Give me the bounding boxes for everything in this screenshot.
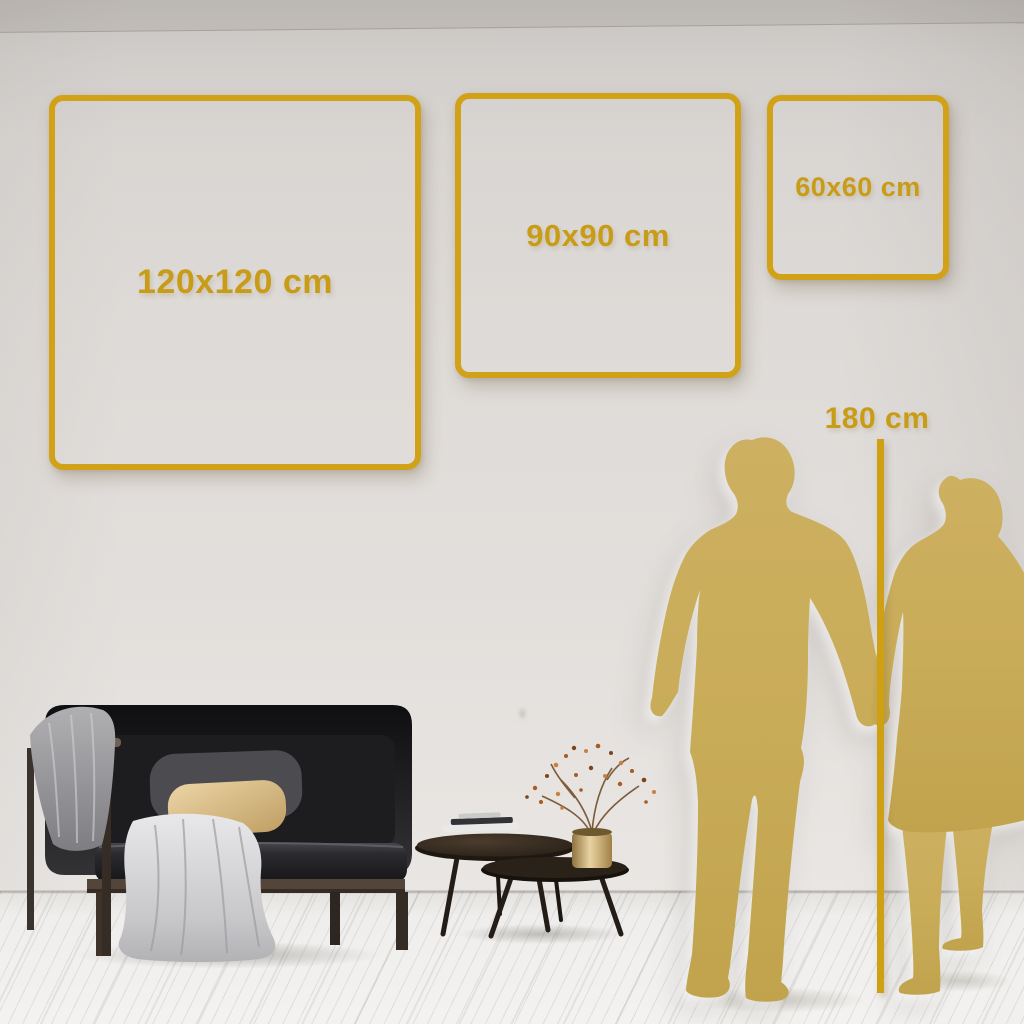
small-table-leg xyxy=(556,880,561,920)
frame-90x90: 90x90 cm xyxy=(455,93,741,378)
man-silhouette xyxy=(650,437,883,1001)
size-label-90: 90x90 cm xyxy=(526,218,670,254)
plant-berries xyxy=(525,744,656,810)
woman-silhouette xyxy=(870,476,1024,833)
small-table-leg xyxy=(601,876,621,934)
small-table-leg xyxy=(491,878,511,936)
frame-120x120: 120x120 cm xyxy=(49,95,421,470)
couple-silhouettes xyxy=(640,430,1024,1015)
sofa-mid-leg xyxy=(330,892,340,945)
frame-60x60: 60x60 cm xyxy=(767,95,949,280)
white-throw xyxy=(119,814,276,962)
size-guide-scene: 120x120 cm 90x90 cm 60x60 cm 180 cm xyxy=(0,0,1024,1024)
big-table-leg xyxy=(443,858,457,934)
sofa-front-right-leg xyxy=(396,892,408,950)
woman-front-leg xyxy=(899,826,947,995)
sofa-rear-left-leg xyxy=(27,748,34,930)
height-ruler-line xyxy=(877,439,884,993)
small-table xyxy=(481,857,629,936)
size-label-60: 60x60 cm xyxy=(795,172,921,203)
coffee-tables xyxy=(415,718,677,944)
books xyxy=(443,812,520,833)
size-label-120: 120x120 cm xyxy=(137,263,333,302)
sofa xyxy=(15,693,427,968)
gold-vase xyxy=(572,828,612,868)
woman-back-leg xyxy=(942,812,995,951)
